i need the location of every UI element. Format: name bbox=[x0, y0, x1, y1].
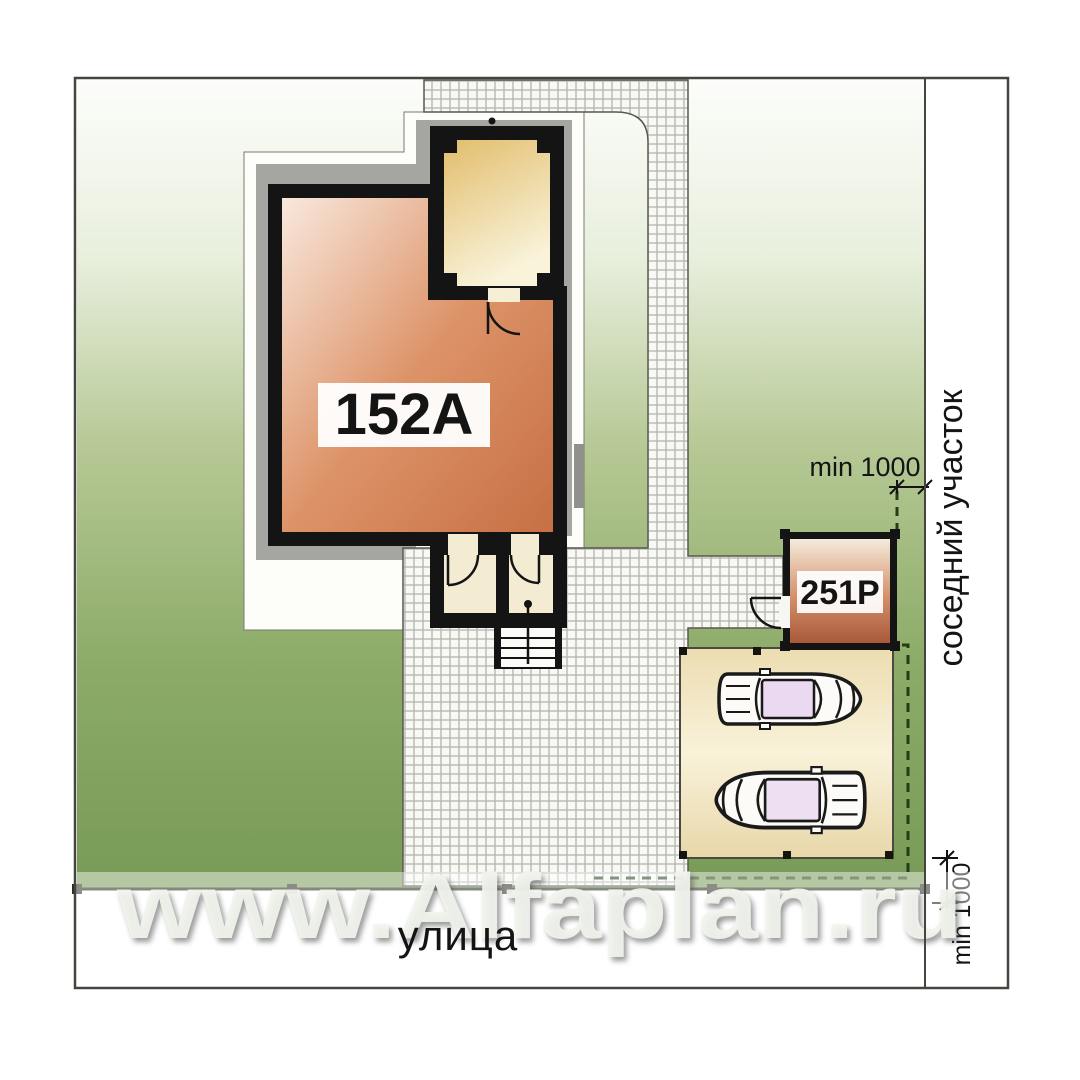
setback-right-text: min 1000 bbox=[809, 452, 920, 482]
car-top-view-2 bbox=[716, 767, 865, 833]
site-plan-image: 152A 251P min 1000 min 1000 соседний уча… bbox=[0, 0, 1080, 1080]
porch-door-opening bbox=[488, 288, 520, 302]
neighbor-plot-label: соседний участок bbox=[932, 388, 970, 666]
garage-label: 251P bbox=[800, 574, 879, 612]
window-marker bbox=[574, 444, 584, 508]
watermark-text: www.Alfaplan.ru bbox=[116, 856, 963, 958]
porch-floor bbox=[444, 140, 550, 286]
vestibule-door-opening-left bbox=[448, 534, 478, 556]
car-top-view-1 bbox=[719, 669, 861, 729]
street-label: улица bbox=[398, 912, 518, 959]
porch-axis-dot bbox=[489, 118, 496, 125]
vestibule-door-opening-right bbox=[511, 534, 539, 556]
house-label: 152A bbox=[335, 382, 474, 447]
site-plan-svg: 152A 251P min 1000 min 1000 соседний уча… bbox=[0, 0, 1080, 1080]
garage-door-opening bbox=[779, 596, 790, 628]
